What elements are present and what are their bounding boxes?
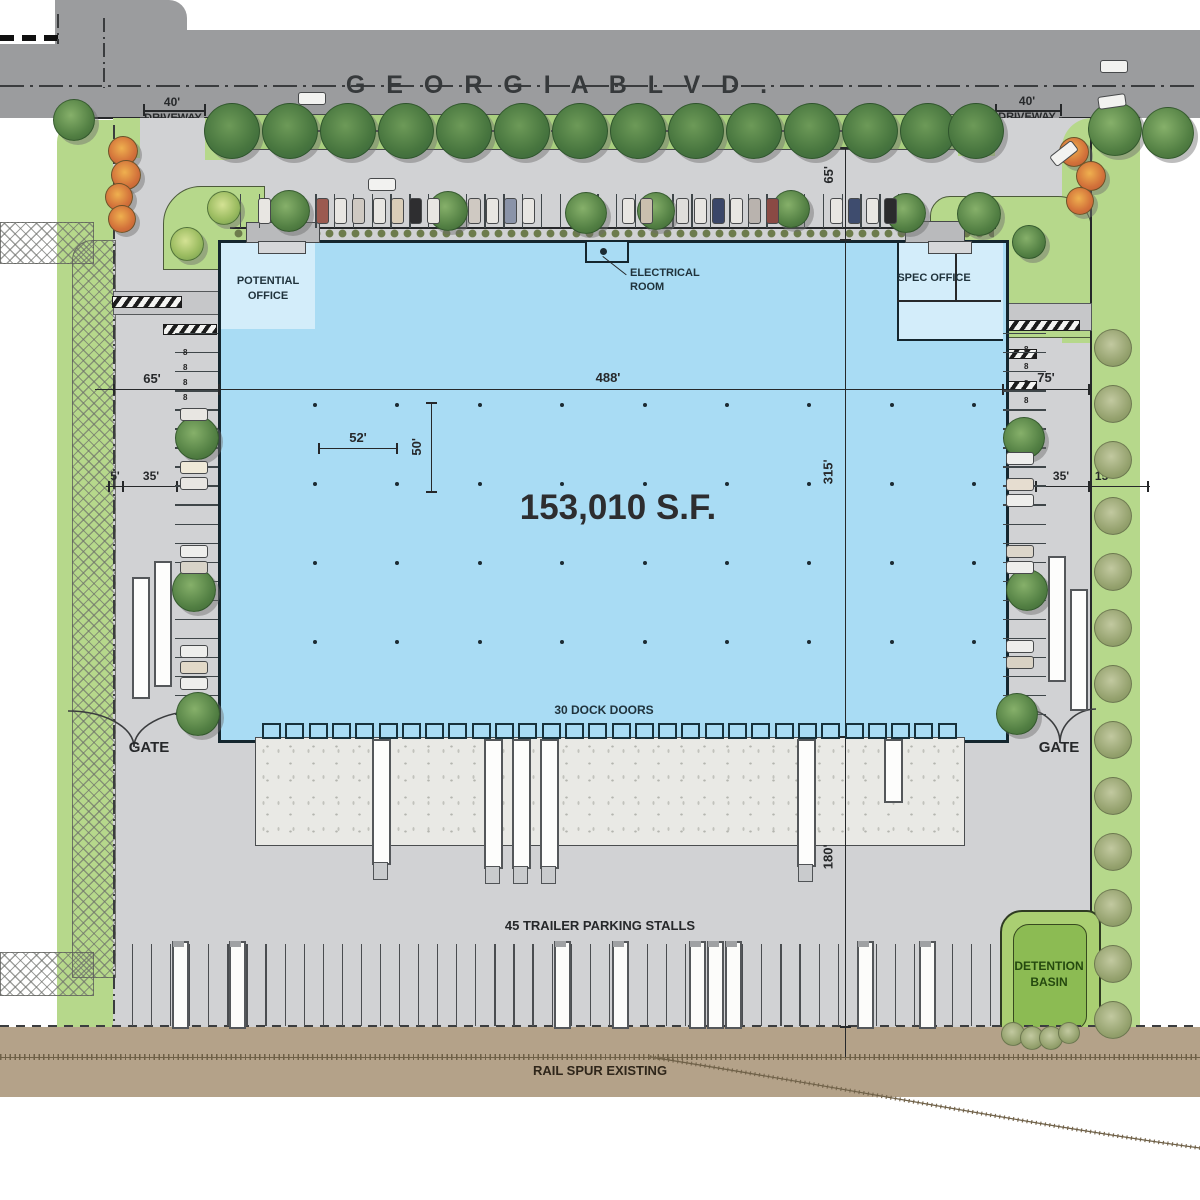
tick [122, 481, 124, 492]
office-entry-canopy [246, 222, 320, 243]
electrical-room-label-2: ROOM [630, 282, 664, 294]
dock-doors-label: 30 DOCK DOORS [554, 704, 653, 717]
planting-strip-line [215, 130, 992, 132]
dim-line-50 [431, 402, 432, 492]
tick [426, 491, 437, 493]
dim-50: 50' [408, 440, 426, 454]
building-area-label: 153,010 S.F. [520, 490, 717, 527]
tick [176, 481, 178, 492]
electrical-room-label-1: ELECTRICAL [630, 268, 700, 280]
hatched-easement-vertical [72, 240, 116, 978]
dim-front-65: 65' [820, 168, 838, 182]
tick [318, 443, 320, 454]
tick [840, 1026, 851, 1028]
spec-office-label: SPEC OFFICE [897, 273, 970, 285]
hedge-row [232, 228, 994, 239]
trailer-stalls-label: 45 TRAILER PARKING STALLS [505, 919, 695, 933]
screen-wall [1003, 320, 1080, 331]
dim-line-52 [318, 448, 398, 449]
potential-office-label-1: POTENTIAL [237, 276, 299, 288]
road-name-label: G E O R G I A B L V D . [346, 72, 774, 98]
gate-right-label: GATE [1039, 740, 1080, 756]
rail-branch-track [600, 1040, 1200, 1170]
tick [426, 402, 437, 404]
dim-488: 488' [596, 371, 621, 385]
right-driveway-dim: 40' [1019, 95, 1035, 108]
spec-office-area [897, 243, 1003, 341]
street-planting-strip [215, 114, 992, 150]
tick [113, 384, 115, 395]
dim-line-488 [95, 389, 1090, 390]
side-street-centerline [57, 14, 59, 44]
spec-entry-canopy [905, 221, 965, 243]
screen-wall [163, 324, 217, 335]
side-street-centerline [103, 18, 105, 88]
rail-crossing-dashes [0, 35, 62, 41]
electrical-equipment-dot [600, 248, 607, 255]
dim-right-75: 75' [1037, 371, 1055, 385]
dim-180: 180' [816, 850, 841, 864]
detention-label-2: BASIN [1030, 976, 1067, 989]
dim-315: 315' [816, 465, 841, 479]
overall-dim-line [845, 147, 846, 1057]
hatched-easement-bottom [0, 952, 94, 996]
potential-office-label-2: OFFICE [248, 291, 288, 303]
tick [1088, 481, 1090, 492]
tick [840, 239, 851, 241]
tick [218, 384, 220, 395]
left-property-line [113, 125, 115, 1025]
tick [1088, 384, 1090, 395]
rail-label: RAIL SPUR EXISTING [533, 1064, 667, 1078]
site-plan-drawing: G E O R G I A B L V D . 40' DRIVEWAY 40'… [0, 0, 1200, 1200]
left-driveway-dim: 40' [164, 96, 180, 109]
tick [204, 104, 206, 116]
dim-left-5: 5' [110, 470, 120, 483]
screen-wall [112, 296, 182, 308]
landscape-patch [113, 118, 140, 158]
spec-office-partition [897, 300, 1001, 302]
tick [995, 104, 997, 116]
gate-left-label: GATE [129, 740, 170, 756]
dim-right-15: 15' [1095, 470, 1111, 483]
dim-line-right-aisle [1003, 486, 1150, 487]
truck-court [255, 737, 965, 846]
tick [1002, 384, 1004, 395]
tick [1035, 481, 1037, 492]
dim-left-35: 35' [143, 470, 159, 483]
tick [1147, 481, 1149, 492]
dim-left-65: 65' [143, 372, 161, 386]
tick [840, 147, 851, 149]
dim-right-35: 35' [1053, 470, 1069, 483]
office-entry-step [258, 241, 306, 254]
spec-entry-step [928, 241, 972, 254]
tick [840, 736, 851, 738]
side-street-stub [55, 0, 187, 50]
right-strip-edge [1090, 118, 1092, 1027]
tick [1060, 104, 1062, 116]
dim-52: 52' [349, 431, 367, 445]
stall-back-line [230, 227, 996, 229]
tick [396, 443, 398, 454]
detention-label-1: DETENTION [1014, 960, 1083, 973]
